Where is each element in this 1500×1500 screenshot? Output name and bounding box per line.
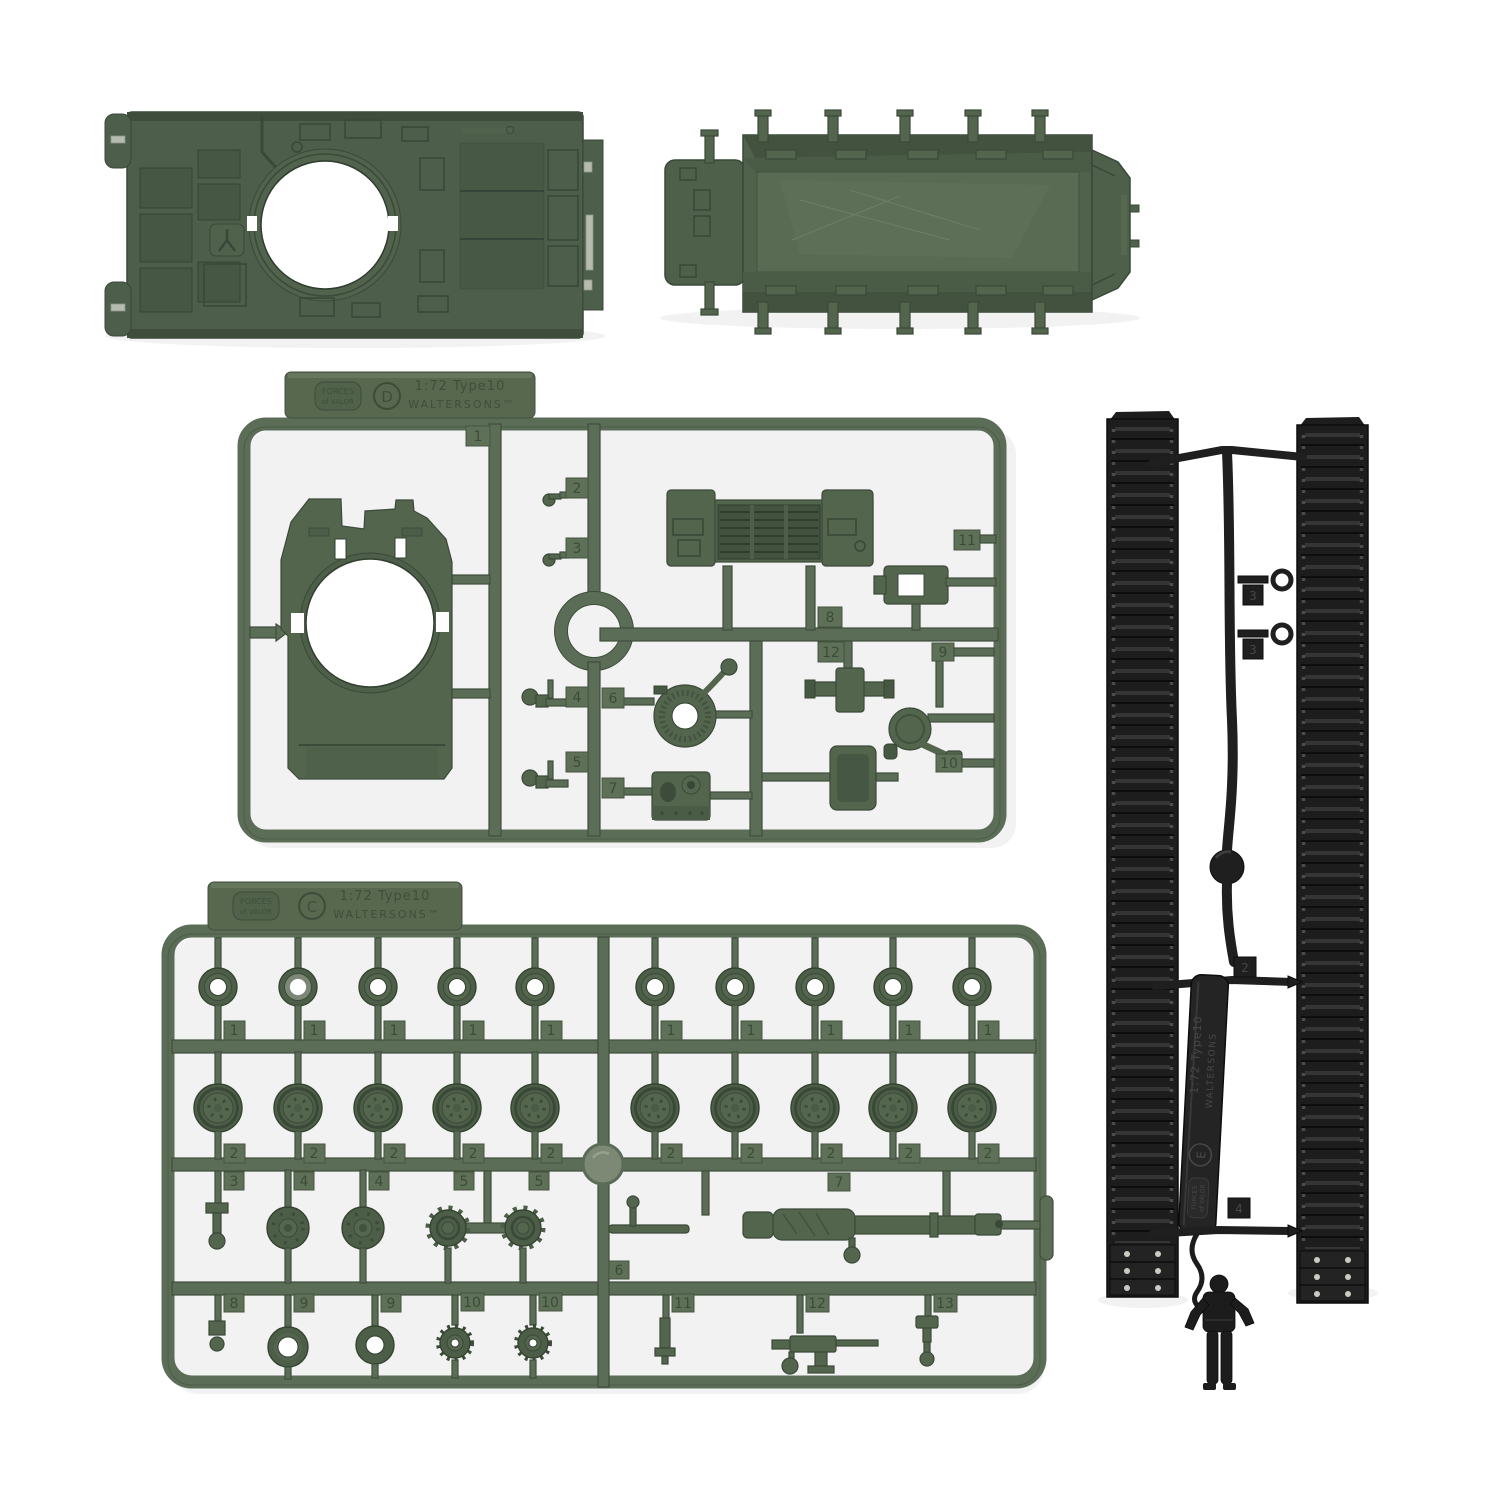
turret-shell-part xyxy=(281,499,452,779)
svg-text:4: 4 xyxy=(375,1174,384,1190)
svg-text:1: 1 xyxy=(827,1023,836,1039)
sprue-label-d: FORCES of VALOR D 1:72 Type10 WALTERSONS… xyxy=(285,372,535,418)
part-number-tag: 1 xyxy=(541,1021,562,1040)
part-number-tag: 9 xyxy=(381,1294,401,1312)
hull-front-plate xyxy=(1092,150,1139,300)
upper-hull-part xyxy=(105,112,605,348)
part-number-tag: 1 xyxy=(466,426,490,446)
sprue-letter: E xyxy=(1194,1151,1208,1159)
svg-text:2: 2 xyxy=(827,1146,836,1162)
sprue-c: FORCES of VALOR C 1:72 Type10 WALTERSONS… xyxy=(168,882,1053,1394)
part-number-tag: 4 xyxy=(369,1172,389,1190)
svg-text:1: 1 xyxy=(230,1023,239,1039)
svg-text:10: 10 xyxy=(940,756,958,772)
part-number-tag: 1 xyxy=(463,1021,484,1040)
part-number-tag: 10 xyxy=(539,1293,562,1311)
svg-text:3: 3 xyxy=(230,1174,239,1190)
ejector-mark xyxy=(583,1144,623,1184)
maker-text: WALTERSONS™ xyxy=(333,908,441,921)
part-number-tag: 8 xyxy=(224,1294,244,1312)
svg-text:9: 9 xyxy=(300,1296,309,1312)
svg-text:1: 1 xyxy=(747,1023,756,1039)
part-number-tag: 2 xyxy=(741,1144,762,1163)
part-number-tag: 1 xyxy=(978,1021,999,1040)
svg-text:2: 2 xyxy=(469,1146,478,1162)
scale-text: 1:72 Type10 xyxy=(415,379,506,394)
track-run-right xyxy=(1297,417,1368,1303)
part-number-tag: 7 xyxy=(828,1173,850,1191)
logo-text-1: FORCES xyxy=(240,897,272,906)
part-number-tag: 4 xyxy=(294,1172,314,1190)
svg-text:FORCES: FORCES xyxy=(1191,1185,1199,1209)
svg-text:2: 2 xyxy=(547,1146,556,1162)
svg-text:2: 2 xyxy=(1241,961,1249,975)
svg-text:5: 5 xyxy=(460,1174,469,1190)
part-number-tag: 8 xyxy=(818,607,842,627)
turret-ring-hole xyxy=(247,149,401,301)
sprue-label-e: 1:72 Type10 WALTERSONS E FORCES of VALOR xyxy=(1178,974,1228,1234)
part-number-tag: 2 xyxy=(384,1144,405,1163)
part-number-tag: 10 xyxy=(461,1293,484,1311)
part-number-tag: 12 xyxy=(806,1294,829,1312)
svg-text:2: 2 xyxy=(390,1146,399,1162)
svg-text:1: 1 xyxy=(667,1023,676,1039)
part-number-tag: 2 xyxy=(224,1144,245,1163)
part-number-tag: 6 xyxy=(602,688,624,708)
sprue-d: FORCES of VALOR D 1:72 Type10 WALTERSONS… xyxy=(244,372,1016,848)
svg-text:2: 2 xyxy=(230,1146,239,1162)
svg-text:4: 4 xyxy=(300,1174,309,1190)
sprue-letter: C xyxy=(307,898,317,916)
svg-text:12: 12 xyxy=(822,645,840,661)
svg-text:2: 2 xyxy=(747,1146,756,1162)
part-number-tag: 12 xyxy=(818,642,844,662)
svg-text:8: 8 xyxy=(230,1296,239,1312)
svg-text:5: 5 xyxy=(573,755,582,771)
svg-text:4: 4 xyxy=(573,690,582,706)
svg-text:11: 11 xyxy=(674,1296,692,1312)
svg-text:2: 2 xyxy=(984,1146,993,1162)
svg-text:12: 12 xyxy=(808,1296,826,1312)
part-number-tag: 2 xyxy=(566,478,588,498)
part-number-tag: 11 xyxy=(672,1294,694,1312)
svg-text:8: 8 xyxy=(826,610,835,626)
part-number-tag: 5 xyxy=(529,1172,549,1190)
svg-text:9: 9 xyxy=(387,1296,396,1312)
svg-text:3: 3 xyxy=(1249,643,1257,657)
svg-text:1: 1 xyxy=(390,1023,399,1039)
svg-text:10: 10 xyxy=(463,1295,481,1311)
model-kit-scene: FORCES of VALOR D 1:72 Type10 WALTERSONS… xyxy=(0,0,1500,1500)
svg-text:10: 10 xyxy=(541,1295,559,1311)
sprue-e-tracks: 3 3 2 1:72 Type10 WALTERSONS E xyxy=(1098,411,1378,1390)
hull-end-plate xyxy=(665,160,745,285)
forces-of-valor-logo: FORCES of VALOR xyxy=(1187,1177,1209,1218)
pin-part xyxy=(936,659,943,707)
forces-of-valor-logo: FORCES of VALOR xyxy=(315,382,361,410)
part-number-tag: 1 xyxy=(224,1021,245,1040)
svg-text:1: 1 xyxy=(905,1023,914,1039)
svg-text:1: 1 xyxy=(474,429,483,445)
svg-text:1: 1 xyxy=(984,1023,993,1039)
part-number-tag: 2 xyxy=(304,1144,325,1163)
svg-text:2: 2 xyxy=(667,1146,676,1162)
part-number-tag: 2 xyxy=(899,1144,920,1163)
part-number-tag: 2 xyxy=(821,1144,842,1163)
svg-text:6: 6 xyxy=(615,1263,624,1279)
svg-text:2: 2 xyxy=(905,1146,914,1162)
sprue-label-c: FORCES of VALOR C 1:72 Type10 WALTERSONS… xyxy=(208,882,462,930)
part-number-tag: 6 xyxy=(609,1261,629,1279)
part-number-tag: 3 xyxy=(224,1172,244,1190)
part-number-tag: 5 xyxy=(566,752,588,772)
part-number-tag: 2 xyxy=(541,1144,562,1163)
part-number-tag: 9 xyxy=(294,1294,314,1312)
part-number-tag: 2 xyxy=(661,1144,682,1163)
svg-text:7: 7 xyxy=(609,781,618,797)
scale-text: 1:72 Type10 xyxy=(340,889,431,904)
part-number-tag: 1 xyxy=(899,1021,920,1040)
hull-rear-plate xyxy=(583,140,603,310)
part-number-tag: 4 xyxy=(1228,1198,1250,1218)
part-number-tag: 2 xyxy=(978,1144,999,1163)
svg-text:1: 1 xyxy=(469,1023,478,1039)
forces-of-valor-logo: FORCES of VALOR xyxy=(233,892,279,920)
svg-text:4: 4 xyxy=(1235,1202,1243,1216)
tow-ring-part: 3 xyxy=(1238,625,1291,659)
sprue-letter: D xyxy=(381,388,393,406)
svg-text:3: 3 xyxy=(1249,589,1257,603)
lower-hull-part xyxy=(660,110,1140,334)
part-number-tag: 1 xyxy=(741,1021,762,1040)
part-number-tag: 4 xyxy=(566,687,588,707)
part-number-tag: 1 xyxy=(821,1021,842,1040)
svg-text:13: 13 xyxy=(936,1296,954,1312)
svg-text:5: 5 xyxy=(535,1174,544,1190)
svg-text:9: 9 xyxy=(939,645,948,661)
part-number-tag: 2 xyxy=(463,1144,484,1163)
part-number-tag: 2 xyxy=(1234,957,1256,977)
svg-text:2: 2 xyxy=(310,1146,319,1162)
logo-text-2: of VALOR xyxy=(240,908,272,916)
part-number-tag: 7 xyxy=(602,778,624,798)
part-number-tag: 1 xyxy=(384,1021,405,1040)
logo-text-1: FORCES xyxy=(322,387,354,396)
track-run-left xyxy=(1107,411,1178,1297)
svg-text:2: 2 xyxy=(573,481,582,497)
svg-text:of VALOR: of VALOR xyxy=(1198,1184,1206,1212)
part-number-tag: 5 xyxy=(454,1172,474,1190)
part-number-tag: 3 xyxy=(566,538,588,558)
logo-text-2: of VALOR xyxy=(322,398,354,406)
svg-text:1: 1 xyxy=(310,1023,319,1039)
product-photo: FORCES of VALOR D 1:72 Type10 WALTERSONS… xyxy=(0,0,1500,1500)
part-number-tag: 1 xyxy=(304,1021,325,1040)
svg-text:3: 3 xyxy=(573,541,582,557)
part-number-tag: 13 xyxy=(934,1294,957,1312)
part-number-tag: 1 xyxy=(661,1021,682,1040)
svg-text:7: 7 xyxy=(835,1175,844,1191)
svg-text:6: 6 xyxy=(609,691,618,707)
tow-ring-part: 3 xyxy=(1238,571,1291,605)
svg-text:11: 11 xyxy=(958,533,976,549)
maker-text: WALTERSONS™ xyxy=(408,398,516,411)
svg-text:1: 1 xyxy=(547,1023,556,1039)
